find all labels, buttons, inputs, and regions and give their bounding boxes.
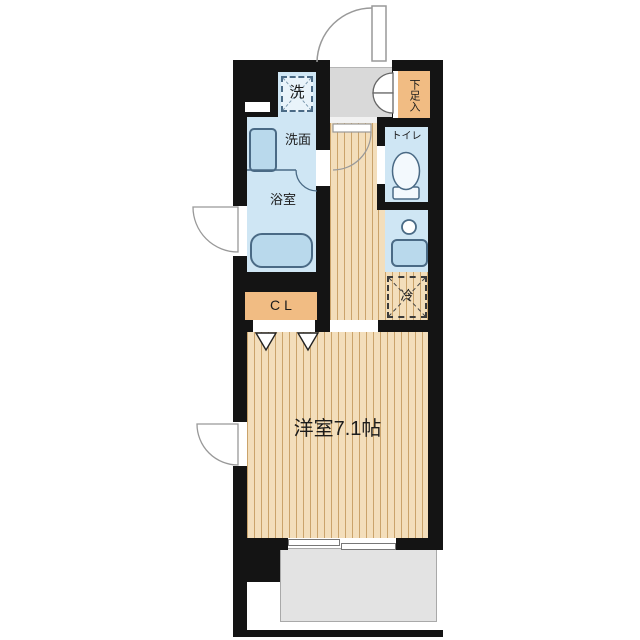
balcony	[280, 548, 437, 622]
wall-segment	[378, 320, 428, 332]
entry-genkan	[330, 67, 392, 118]
wall-segment	[377, 202, 443, 210]
wall-segment	[233, 582, 247, 632]
wall-segment	[316, 186, 330, 322]
toilet-door-opening	[377, 146, 385, 184]
wall-segment	[245, 272, 317, 292]
wall-segment	[233, 60, 247, 206]
washer-label: 洗	[281, 85, 313, 102]
floorplan: 洗 洗面 浴室 トイレ 下足入 冷 CL 洋室7.1帖	[0, 0, 640, 640]
hall-room-opening	[330, 320, 378, 332]
sliding-window-pane	[288, 539, 340, 546]
wall-segment	[233, 538, 280, 582]
hallway-floor	[330, 123, 378, 320]
western-room-label: 洋室7.1帖	[247, 418, 428, 440]
wall-segment	[377, 117, 443, 127]
hallway-floor-extension	[378, 210, 385, 320]
wall-segment	[396, 538, 443, 550]
washbasin-room-label: 洗面	[276, 133, 320, 147]
toilet-label: トイレ	[385, 131, 428, 142]
bathroom-label: 浴室	[261, 193, 305, 207]
wall-segment	[233, 466, 247, 540]
refrigerator-label: 冷	[387, 289, 427, 303]
shoe-cabinet-label: 下足入	[398, 74, 430, 116]
washbasin	[249, 128, 277, 172]
washroom-door-opening	[316, 150, 330, 186]
wall-segment	[280, 538, 288, 550]
sliding-window-pane	[341, 543, 396, 550]
slit-window	[245, 102, 270, 112]
closet-opening	[253, 320, 315, 332]
casement-window-icon	[197, 424, 238, 465]
entrance-door-swing-icon	[317, 8, 372, 62]
window-gap	[233, 206, 247, 256]
window-gap	[233, 422, 247, 466]
wall-segment	[428, 60, 443, 550]
kitchen-sink	[391, 239, 428, 267]
casement-window-icon	[193, 207, 238, 252]
wall-segment	[315, 320, 330, 332]
bathtub	[250, 233, 313, 268]
wall-segment	[233, 630, 443, 637]
genkan-step	[330, 117, 377, 123]
closet-label: CL	[245, 298, 317, 313]
wall-segment	[237, 60, 318, 72]
entrance-door-leaf-icon	[372, 6, 386, 61]
